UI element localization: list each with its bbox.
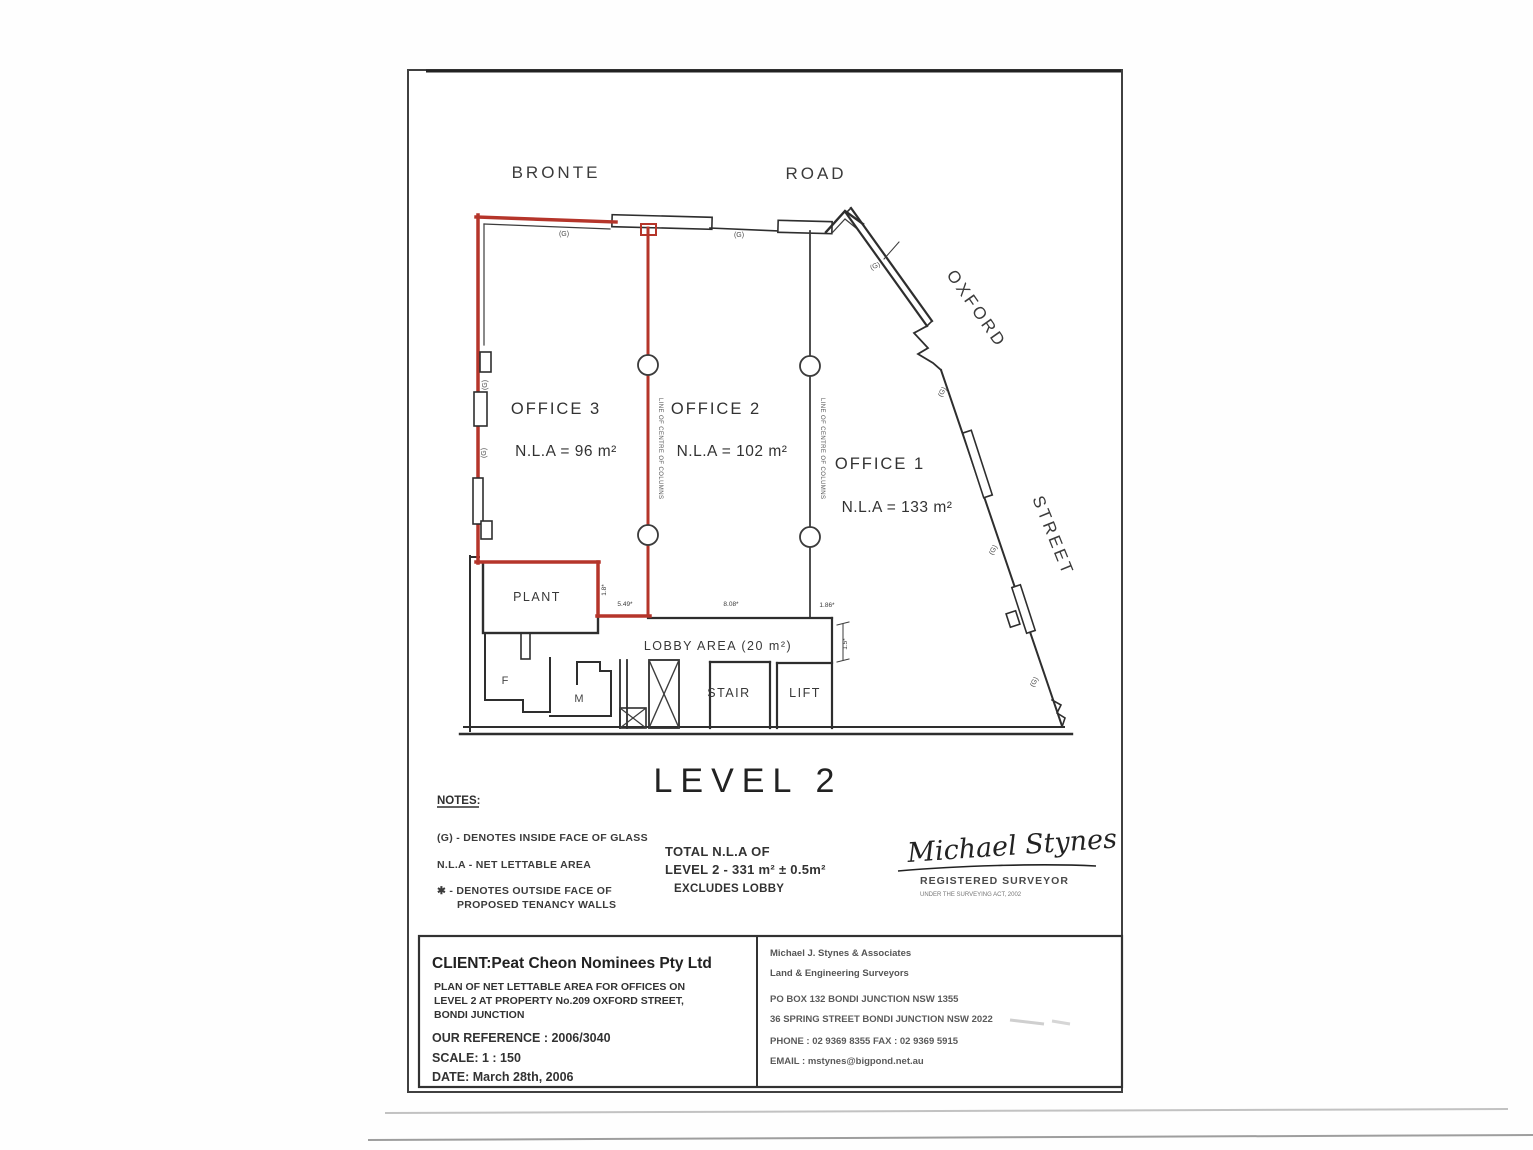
surveyor-phone-fax: PHONE : 02 9369 8355 FAX : 02 9369 5915 [770,1036,959,1047]
note-star-line1: ✱ - DENOTES OUTSIDE FACE OF [437,885,612,897]
dimension-label: 1.5* [842,638,849,650]
lobby-area-label: LOBBY AREA (20 m²) [644,639,792,653]
female-toilet-label: F [502,675,509,687]
signature-title: REGISTERED SURVEYOR [920,875,1069,887]
dimension-label: 5.49* [617,601,633,608]
plan-description-line2: LEVEL 2 AT PROPERTY No.209 OXFORD STREET… [434,995,684,1007]
office2-label: OFFICE 2 [671,400,761,418]
notes-heading: NOTES: [437,795,480,807]
office3-nla: N.L.A = 96 m² [515,443,617,460]
note-star-line2: PROPOSED TENANCY WALLS [457,899,616,911]
total-nla-line1: TOTAL N.L.A OF [665,844,770,859]
glass-marker-icon: (G) [734,232,744,239]
column-line-label-1: LINE OF CENTRE OF COLUMNS [657,398,663,499]
signature-subtitle: UNDER THE SURVEYING ACT, 2002 [920,892,1022,898]
office1-label: OFFICE 1 [835,455,925,473]
dimension-label: 1.8* [601,584,608,596]
plan-description-line1: PLAN OF NET LETTABLE AREA FOR OFFICES ON [434,981,685,993]
scan-artifact-lines [368,1109,1533,1140]
title-block: CLIENT:Peat Cheon Nominees Pty Ltd PLAN … [419,936,1122,1087]
glass-marker-icon: (G) [482,380,489,390]
client-name: CLIENT:Peat Cheon Nominees Pty Ltd [432,955,712,972]
glass-marker-icon: (G) [481,448,488,458]
lift-label: LIFT [789,686,821,700]
street-label-road: ROAD [785,164,846,183]
total-nla-line2: LEVEL 2 - 331 m² ± 0.5m² [665,862,826,877]
surveyor-email: EMAIL : mstynes@bigpond.net.au [770,1056,924,1067]
our-reference: OUR REFERENCE : 2006/3040 [432,1031,611,1045]
office3-label: OFFICE 3 [511,400,601,418]
surveyor-firm: Michael J. Stynes & Associates [770,948,911,959]
dimension-label: 1.86* [819,602,835,609]
note-nla: N.L.A - NET LETTABLE AREA [437,859,591,871]
surveyor-type: Land & Engineering Surveyors [770,968,909,979]
surveyor-pobox: PO BOX 132 BONDI JUNCTION NSW 1355 [770,994,959,1005]
total-nla-line3: EXCLUDES LOBBY [674,883,784,895]
plan-description-line3: BONDI JUNCTION [434,1009,524,1021]
floor-plan-drawing: BRONTE ROAD OXFORD STREET OFFICE 3 N.L.A… [0,0,1533,1150]
date-value: DATE: March 28th, 2006 [432,1070,574,1084]
scale-value: SCALE: 1 : 150 [432,1051,521,1065]
scanned-survey-plan-page: BRONTE ROAD OXFORD STREET OFFICE 3 N.L.A… [0,0,1533,1150]
office1-nla: N.L.A = 133 m² [842,499,953,516]
street-label-bronte: BRONTE [512,163,601,182]
male-toilet-label: M [574,693,583,705]
glass-marker-icon: (G) [559,231,569,238]
stair-label: STAIR [707,686,750,700]
surveyor-street-address: 36 SPRING STREET BONDI JUNCTION NSW 2022 [770,1014,993,1025]
column-line-label-2: LINE OF CENTRE OF COLUMNS [819,398,825,499]
dimension-label: 8.08* [723,601,739,608]
plant-room-label: PLANT [513,590,561,604]
office2-nla: N.L.A = 102 m² [677,443,788,460]
note-glass: (G) - DENOTES INSIDE FACE OF GLASS [437,832,648,844]
level-title: LEVEL 2 [654,762,843,800]
